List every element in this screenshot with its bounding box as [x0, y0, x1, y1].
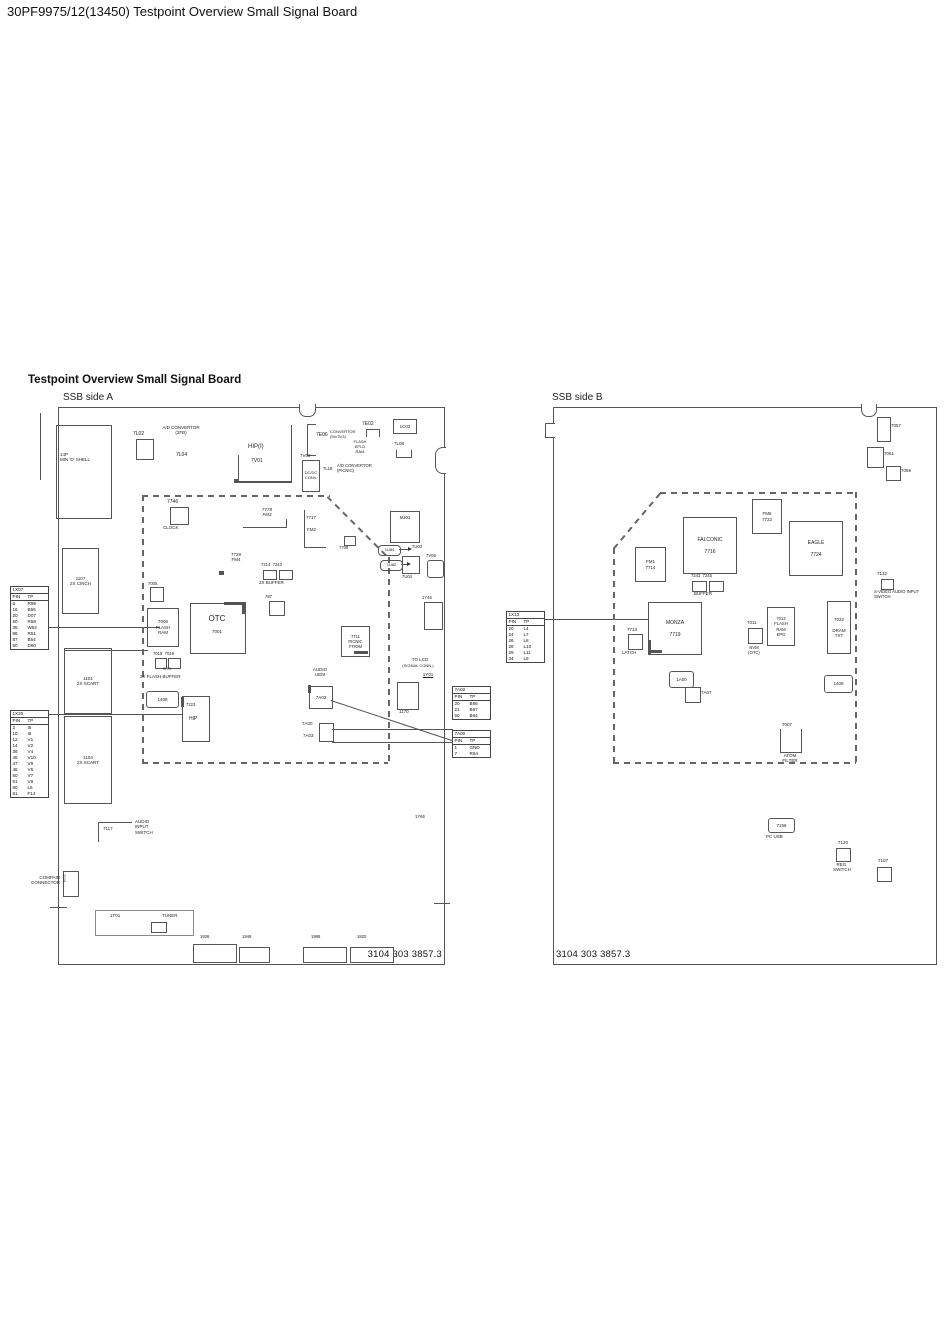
label-787: 787	[265, 594, 272, 599]
box-7011-nvm	[748, 628, 763, 644]
label-fm3: 7778 FM3	[246, 507, 288, 518]
label-7713: 7713	[627, 627, 637, 632]
ssb-side-a-trace-8	[40, 413, 41, 480]
box-7713-latch	[628, 634, 643, 650]
box-7a02: 7A02	[309, 686, 333, 709]
ssb-side-a-trace-12	[304, 547, 326, 548]
label-1y01: 1Y01	[416, 672, 440, 677]
ssb-side-a-trace-7	[40, 714, 183, 715]
box-1408: 1408	[146, 691, 179, 708]
conn-1820	[350, 947, 394, 963]
table-1x07-pin-8: 50	[13, 643, 28, 649]
note-7e06: CONVERTOR (5V/3V3)	[330, 430, 355, 440]
box-7012-flash-ram-epg: 7012 FLASH RAM EPG	[767, 607, 795, 646]
ssb-side-a-trace-25	[434, 903, 450, 904]
box-1y45	[424, 602, 443, 630]
label-compair-connector: COMPAIR CONNECTOR	[16, 875, 60, 886]
box-7061	[867, 447, 884, 468]
label-to-lcd: TO LCD	[400, 657, 440, 662]
table-1x13-title: 1X13	[507, 612, 544, 619]
label-7v02: 7V02	[300, 453, 311, 458]
label-hip: HIP	[189, 716, 197, 722]
table-7a00-tp-2: R64	[470, 751, 478, 757]
box-7032-dram-txt: 7032 DRAM TXT	[827, 601, 851, 654]
table-7a02-pin-3: 50	[455, 713, 470, 719]
section-title: Testpoint Overview Small Signal Board	[28, 374, 241, 386]
page-header: 30PF9975/12(13450) Testpoint Overview Sm…	[7, 4, 357, 19]
table-7a00-title: 7A00	[453, 731, 490, 738]
label-1820: 1820	[357, 934, 366, 939]
dashed-top-a	[142, 495, 330, 497]
label-7l18: 7L18	[323, 466, 332, 471]
label-hip-i: HIP(I)	[248, 444, 264, 451]
bracket-7007	[780, 729, 802, 753]
table-7a00-header: PINTP	[453, 738, 490, 745]
label-7132: 7132	[877, 571, 887, 576]
conn-1988	[303, 947, 347, 963]
box-buffer-2	[279, 570, 293, 580]
schematic-page: 30PF9975/12(13450) Testpoint Overview Sm…	[0, 0, 950, 1343]
ssb-side-a-trace-20	[332, 729, 453, 730]
table-1x07-header: PINTP	[11, 594, 48, 601]
arrowhead-1u84	[408, 547, 412, 551]
min-d-shell-connector	[56, 425, 112, 519]
table-1x20-col-tp: TP	[28, 718, 34, 724]
label-7107: 7107	[878, 858, 888, 863]
board-a-top-notch	[299, 404, 316, 417]
label-1988: 1988	[311, 934, 320, 939]
box-7057	[877, 417, 891, 442]
table-1x20-tp-12: F14	[28, 791, 36, 797]
ssb-side-a-trace-11	[304, 510, 305, 548]
label-audio-uem: AUDIO UEM	[308, 667, 332, 678]
label-7a00: 7A00	[302, 721, 313, 726]
table-7a00-col-tp: TP	[470, 738, 476, 744]
ssb-side-a-trace-23	[98, 822, 99, 842]
label-7v06: 7V06	[426, 553, 436, 558]
table-1x13-col-pin: PIN	[509, 619, 524, 625]
ssb-side-a-trace-3	[291, 425, 292, 482]
table-1x13-tp-6: L9	[524, 656, 529, 662]
note-7l18: A/D CONVERTOR (PICNIC)	[337, 463, 372, 473]
ssb-side-b-trace-1	[545, 619, 648, 620]
table-1x07-col-tp: TP	[28, 594, 34, 600]
table-1x13-header: PINTP	[507, 619, 544, 626]
label-buffer-b-nums: 7243 7245	[691, 573, 712, 578]
arrowhead-1u82	[407, 562, 411, 566]
conn-1936	[193, 944, 237, 963]
table-7a02-tp-3: B64	[470, 713, 478, 719]
label-signal-conn: (SIGNAL CONN.)	[392, 664, 444, 669]
label-clock: CLOCK	[163, 525, 179, 530]
table-1x20-header: PINTP	[11, 718, 48, 725]
box-fm6-7722: FM6 7722	[752, 499, 782, 534]
table-1x07-col-pin: PIN	[13, 594, 28, 600]
label-audio-input-switch: AUDIO INPUT SWITCH	[135, 819, 153, 835]
ssb-side-b-label: SSB side B	[552, 392, 603, 404]
box-7a00-7a03	[319, 723, 334, 742]
table-7a02: 7A02PINTP20B6621B6750B64	[452, 686, 491, 720]
box-7u04	[402, 556, 420, 574]
label-7e02: 7E02	[362, 421, 374, 427]
label-7u03: 7U03	[412, 544, 422, 549]
label-7117: 7117	[103, 826, 113, 831]
table-7a00-pin-2: 7	[455, 751, 470, 757]
label-2x-flash-buffer: 2X FLASH BUFFER	[140, 674, 181, 679]
label-1t01: 1T01	[110, 913, 120, 918]
box-falconic-7716: FALCONIC 7716	[683, 517, 737, 574]
box-7107	[877, 867, 892, 882]
label-7e06: 7E06	[316, 432, 328, 438]
box-buffer-1	[263, 570, 277, 580]
label-7l08: 7L08	[394, 441, 404, 446]
label-7061: 7061	[884, 451, 894, 456]
label-2x-buffer: 2X BUFFER	[259, 580, 284, 585]
table-1x20-row-12: 61F14	[11, 791, 48, 797]
label-min-d-shell: 14P MIN 'D' SHELL	[60, 452, 90, 463]
board-b-top-notch	[861, 404, 877, 417]
ssb-side-a-trace-9	[243, 527, 287, 528]
label-otc-small: OTC	[163, 667, 171, 672]
board-a-right-cutout	[435, 447, 446, 474]
label-7l04: 7L04	[176, 452, 187, 458]
bracket-7e02	[366, 429, 380, 437]
box-7a07	[685, 687, 701, 703]
label-7120: 7120	[838, 840, 848, 845]
label-7007: 7007	[782, 722, 792, 727]
label-7l02: 7L02	[133, 431, 144, 437]
label-reg-switch: REG. SWITCH	[828, 862, 856, 873]
box-tuner-t1	[151, 922, 167, 933]
table-7a02-row-3: 50B64	[453, 713, 490, 719]
box-monza-7719: MONZA 7719	[648, 602, 702, 655]
label-7223: 7223	[186, 702, 195, 707]
label-pc-usb: PC USB	[766, 834, 783, 839]
junction-dot-adc	[234, 479, 239, 483]
label-7a07: 7A07	[701, 690, 712, 695]
table-1x20-col-pin: PIN	[13, 718, 28, 724]
dashed-bottom-a	[142, 762, 388, 764]
table-1x13-row-6: 34L9	[507, 656, 544, 662]
box-7059	[886, 466, 901, 481]
table-1x13-col-tp: TP	[524, 619, 530, 625]
junction-dot-fm4	[219, 571, 224, 575]
dashed-right-a	[388, 557, 390, 763]
label-fm4: 7729 FM4	[220, 552, 252, 563]
box-scart-1104: 1104 2X SCART	[64, 716, 112, 804]
box-fm1-7714: FM1 7714	[635, 547, 666, 582]
table-1x20-pin-12: 61	[13, 791, 28, 797]
label-7018-7019: 7018 7019	[153, 651, 174, 656]
label-buffer-nums: 7214 7243	[261, 562, 282, 567]
conn-1946	[239, 947, 270, 963]
label-latch: LATCH	[622, 650, 636, 655]
label-7717: 7717	[306, 515, 316, 520]
label-7011: 7011	[747, 620, 757, 625]
label-flash-epld-ram: FLASH EPLD RAM	[350, 440, 370, 454]
callout-1u82: 1U82	[380, 560, 403, 571]
dashed-left-b	[613, 548, 615, 763]
label-7a03: 7A03	[303, 733, 314, 738]
ssb-side-b-part-number: 3104 303 3857.3	[556, 949, 642, 960]
box-7006-flash-ram: 7006 FLASH RAM	[147, 608, 179, 647]
table-7a00-row-2: 7R64	[453, 751, 490, 757]
label-7u04: 7U04	[402, 574, 412, 579]
label-svideo-audio-switch: S-VIDEO AUDIO INPUT SWITCH	[874, 589, 919, 599]
box-7l02	[136, 439, 154, 460]
dashed-right-b	[855, 492, 857, 763]
label-1936: 1936	[200, 934, 209, 939]
box-eagle-7724: EAGLE 7724	[789, 521, 843, 576]
table-7a02-col-pin: PIN	[455, 694, 470, 700]
label-nvm-otc: NVM (OTC)	[744, 645, 764, 655]
label-7059: 7059	[901, 468, 911, 473]
label-1y66: 1Y66	[415, 814, 425, 819]
box-1a00: 1A00	[669, 671, 694, 688]
table-7a02-header: PINTP	[453, 694, 490, 701]
table-7a02-col-tp: TP	[470, 694, 476, 700]
label-atom-filter: ATOM FILTER	[777, 753, 803, 764]
label-1119: 1119	[61, 874, 66, 882]
bracket-7l08	[396, 450, 412, 458]
label-7746: 7746	[167, 499, 178, 505]
table-7a00-col-pin: PIN	[455, 738, 470, 744]
label-7005: 7005	[148, 581, 157, 586]
label-buffer-b: BUFFER	[694, 591, 712, 596]
table-1x07-tp-8: D50	[28, 643, 36, 649]
label-7708: 7708	[339, 545, 348, 550]
box-1170	[397, 682, 419, 710]
box-cinch-1107: 1107 2X CINCH	[62, 548, 99, 614]
table-7a02-title: 7A02	[453, 687, 490, 694]
box-7v02: DC/DC CONV.	[302, 460, 320, 492]
box-picnic-7711: 7711 PICNIC FTIOM	[341, 626, 370, 657]
label-7v01: 7V01	[251, 458, 263, 464]
box-1409: 1409	[824, 675, 853, 693]
dashed-left-a	[142, 495, 144, 763]
box-787	[269, 601, 285, 616]
table-1x07-row-8: 50D50	[11, 643, 48, 649]
table-1x13-pin-6: 34	[509, 656, 524, 662]
label-otc: OTC	[195, 614, 239, 624]
label-fm2: FM2	[307, 527, 316, 532]
label-1170: 1170	[399, 709, 409, 714]
table-1x13: 1X13PINTP20L424L726L828L1029L1134L9	[506, 611, 545, 663]
ssb-side-a-trace-22	[98, 822, 132, 823]
ssb-side-a-trace-21	[332, 742, 452, 743]
box-scart-1101: 1101 2X SCART	[64, 648, 112, 714]
box-7156: 7156	[768, 818, 795, 833]
box-7v06	[427, 560, 444, 578]
ssb-side-a-trace-10	[286, 519, 287, 528]
box-5u01: 5U01	[390, 511, 420, 543]
box-7005	[150, 587, 164, 602]
label-adc-2fb: A/D CONVERTOR (2FB)	[150, 425, 212, 436]
table-1x07-title: 1X07	[11, 587, 48, 594]
label-7057: 7057	[891, 423, 901, 428]
bracket-7e06	[307, 424, 316, 456]
dashed-top-b	[660, 492, 855, 494]
callout-1u84: 1U84	[378, 545, 401, 556]
box-1c02: 1C02	[393, 419, 417, 434]
table-1x20: 1X20PINTP2I510I612V114V236V446V1047V948V…	[10, 710, 49, 798]
ssb-side-a-label: SSB side A	[63, 392, 113, 404]
box-7746	[170, 507, 189, 525]
board-b-left-tab	[545, 423, 555, 438]
label-7001: 7001	[195, 629, 239, 634]
ssb-side-a-outline	[58, 407, 445, 965]
label-1946: 1946	[242, 934, 251, 939]
label-1y45: 1Y45	[422, 595, 432, 600]
label-tuner: TUNER	[162, 913, 178, 918]
table-1x20-title: 1X20	[11, 711, 48, 718]
table-7a00: 7A00PINTP1GND7R64	[452, 730, 491, 758]
table-1x07: 1X07PINTP6R9916B5620D0760R5835W5286R5187…	[10, 586, 49, 650]
dashed-bottom-b	[613, 762, 856, 764]
ssb-side-a-trace-24	[50, 907, 67, 908]
box-7120	[836, 848, 851, 862]
ssb-side-a-trace-2	[238, 481, 292, 483]
